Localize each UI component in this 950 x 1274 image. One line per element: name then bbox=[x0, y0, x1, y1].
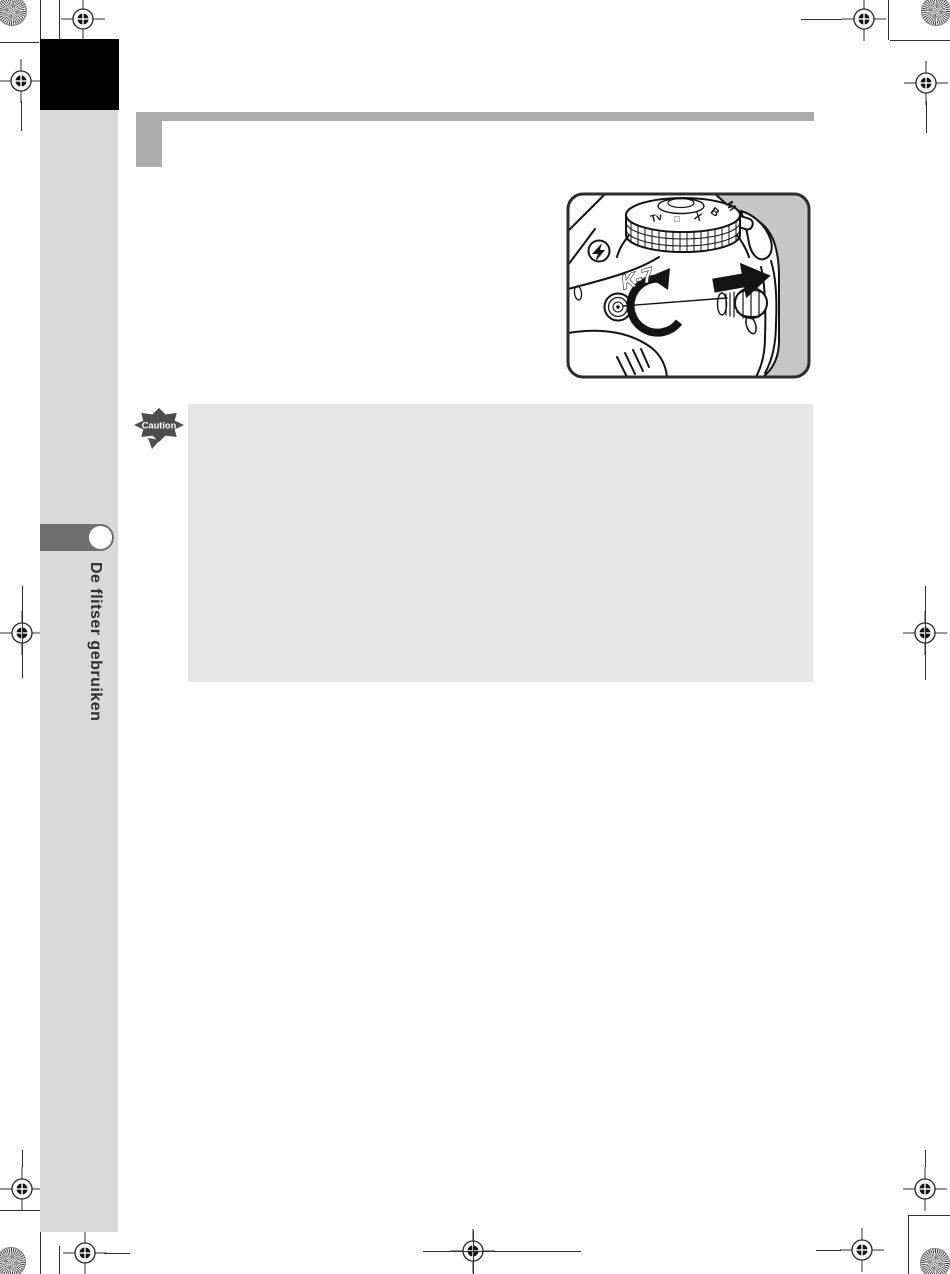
crop-line bbox=[925, 1150, 926, 1167]
crop-line bbox=[40, 0, 41, 39]
crop-line bbox=[22, 1150, 23, 1167]
registration-mark-icon bbox=[904, 61, 948, 105]
crop-line bbox=[104, 1253, 130, 1254]
manual-page: De flitser gebruiken bbox=[0, 0, 950, 1274]
mode-dial-top bbox=[626, 198, 740, 232]
registration-mark-icon bbox=[842, 0, 886, 41]
chapter-number-tab bbox=[40, 39, 119, 110]
pinwheel-star-icon bbox=[0, 0, 27, 26]
crop-line bbox=[816, 1250, 841, 1251]
crop-line bbox=[59, 0, 60, 39]
caution-note-box bbox=[188, 404, 813, 682]
registration-mark-icon bbox=[903, 1167, 947, 1211]
caution-icon: Caution bbox=[133, 406, 185, 452]
sidebar-chapter-dot bbox=[89, 526, 112, 549]
registration-mark-icon bbox=[61, 0, 105, 41]
dial-mark: □ bbox=[674, 214, 680, 224]
sidebar-chapter-title: De flitser gebruiken bbox=[86, 562, 104, 721]
crop-line bbox=[59, 1246, 60, 1274]
registration-mark-icon bbox=[63, 1231, 107, 1274]
sidebar-band bbox=[40, 110, 118, 1232]
registration-mark-icon bbox=[0, 59, 43, 103]
heading-rule bbox=[136, 112, 814, 121]
pinwheel-star-icon bbox=[0, 1247, 26, 1274]
crop-line bbox=[925, 586, 926, 680]
caution-label: Caution bbox=[142, 421, 177, 431]
crop-line bbox=[423, 1251, 581, 1252]
crop-line bbox=[908, 1215, 950, 1216]
crop-line bbox=[908, 1215, 909, 1274]
crop-line bbox=[888, 0, 889, 40]
crop-line bbox=[473, 1231, 474, 1274]
camera-sync-socket-figure: K-7 Tv □ X B M bbox=[565, 191, 812, 380]
crop-line bbox=[890, 40, 950, 41]
crop-line bbox=[0, 42, 39, 43]
registration-mark-icon bbox=[0, 1167, 44, 1211]
crop-line bbox=[0, 1210, 40, 1211]
pinwheel-star-icon bbox=[920, 1248, 950, 1274]
registration-mark-icon bbox=[840, 1228, 884, 1272]
crop-line bbox=[801, 19, 842, 20]
crop-line bbox=[22, 586, 23, 678]
pinwheel-star-icon bbox=[921, 0, 950, 26]
crop-line bbox=[926, 101, 927, 133]
crop-line bbox=[21, 101, 22, 131]
